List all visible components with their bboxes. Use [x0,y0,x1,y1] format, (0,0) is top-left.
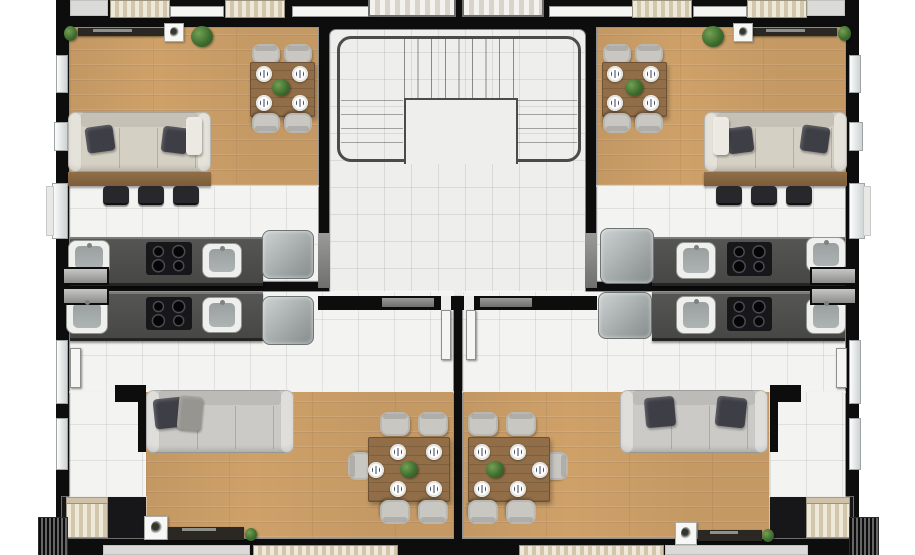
place-setting [292,95,308,111]
service-window [810,287,857,305]
place-setting [474,481,490,497]
wall-inset [480,298,532,307]
window-sill [46,186,54,236]
throw-pillow [715,396,748,429]
bar-stool [173,186,199,205]
fridge [598,292,652,339]
door-leaf [70,348,81,388]
place-setting [390,481,406,497]
wall-decor [733,23,753,42]
tv-console [698,530,762,541]
corner-closet-unit [38,517,68,555]
place-setting [607,66,623,82]
partial-room-floor [103,545,250,555]
closet-wardrobe-left [66,503,108,538]
fridge [262,230,314,279]
place-setting [426,481,442,497]
sofa-arm [68,112,82,172]
throw-pillow [644,396,677,429]
service-window [62,267,109,285]
dining-chair [252,113,280,133]
sofa-back [717,112,834,127]
window [849,340,861,404]
bar-stool [716,186,742,205]
dining-chair [380,500,410,524]
throw-pillow [84,124,115,154]
dining-chair [635,113,663,133]
corner-closet-unit [849,517,879,555]
closet-panel-center-right [462,0,544,17]
window [849,55,861,93]
dining-chair [284,113,312,133]
cooktop [146,242,192,275]
place-setting [474,444,490,460]
kitchen-sink [676,242,716,279]
fridge [600,228,654,284]
table-centerpiece-plant [625,79,643,96]
place-setting [643,95,659,111]
place-setting [426,444,442,460]
window [56,340,68,404]
dining-chair [252,44,280,64]
dining-chair [418,500,448,524]
console-table [68,172,211,186]
core-bottom-wall [318,296,597,310]
door-top-4 [693,6,747,17]
wall-decor [164,23,184,42]
place-setting [643,66,659,82]
kitchen-sink [202,243,242,278]
kitchen-sink [202,297,242,333]
place-setting [510,444,526,460]
closet-panel-center-left [368,0,456,17]
window [56,418,68,470]
sofa-arm [754,390,768,453]
window-sill [863,186,871,236]
sofa-arm [280,390,294,453]
place-setting [256,95,272,111]
kitchen-sink [676,296,716,334]
floorplan-canvas [0,0,915,555]
window [849,418,861,470]
sofa [620,390,768,453]
sofa-arm [620,390,634,453]
window [54,122,68,151]
sofa [704,112,847,172]
bar-stool [103,186,129,205]
unit-bottom-left-hallway-floor [70,392,146,497]
side-table-decor [144,516,168,540]
throw-pillow [726,126,755,155]
dining-chair [635,44,663,64]
unit-bottom-right-hallway-floor [770,392,845,497]
sofa-back [81,112,198,127]
table-centerpiece-plant [400,461,418,478]
dining-chair [468,412,498,436]
place-setting [368,462,384,478]
dining-chair [284,44,312,64]
potted-plant [245,528,257,541]
place-setting [532,462,548,478]
place-setting [390,444,406,460]
sofa [68,112,211,172]
bar-stool [751,186,777,205]
tv-console [78,28,164,36]
console-table [704,172,847,186]
dining-chair [418,412,448,436]
dining-chair [506,412,536,436]
stair-treads [404,39,514,98]
throw-pillow [713,117,729,155]
bar-stool [786,186,812,205]
potted-plant [702,26,724,47]
side-table-decor [675,522,697,545]
wardrobe-bottom-right [519,545,664,555]
place-setting [292,66,308,82]
table-centerpiece-plant [486,461,504,478]
partial-room-floor [665,545,808,555]
entry-opening-top-left-unit [318,233,330,288]
door-gap [441,296,451,310]
dining-chair [603,113,631,133]
place-setting [256,66,272,82]
entry-door-bottom-right-unit [466,310,476,360]
wall-inset [382,298,434,307]
closet-wardrobe-right [806,503,850,538]
wardrobe-top-left-2 [225,0,285,18]
stair-landing [404,98,518,164]
potted-plant [64,26,77,41]
door-top-3 [549,6,635,17]
window [52,183,68,239]
dining-chair [506,500,536,524]
door-top-1 [170,6,224,17]
wall-partition [138,396,146,452]
service-window [810,267,857,285]
window [56,55,68,93]
wardrobe-top-right [747,0,807,18]
cooktop [146,297,192,330]
dining-chair [468,500,498,524]
wardrobe-top-right-2 [632,0,692,18]
wardrobe-bottom-left [253,545,398,555]
partial-room-floor [70,0,108,16]
table-centerpiece-plant [272,79,290,96]
throw-pillow [799,124,830,154]
cooktop [727,297,772,331]
potted-plant [191,26,213,47]
door-leaf [836,348,847,388]
wall-partition [770,396,778,452]
dining-chair [380,412,410,436]
sofa [146,390,294,453]
throw-pillow [177,395,204,431]
potted-plant [838,26,851,41]
stair-steps-left [341,100,403,156]
tv-console [751,28,837,36]
entry-door-bottom-left-unit [441,310,451,360]
sofa-arm [833,112,847,172]
throw-pillow [186,117,202,155]
entry-opening-top-right-unit [585,233,597,288]
dining-chair [603,44,631,64]
tv-console [168,527,244,540]
cooktop [727,242,772,276]
fridge [262,296,314,345]
window [849,122,863,151]
partial-room-floor [807,0,845,16]
door-gap [464,296,474,310]
potted-plant [762,529,774,542]
place-setting [510,481,526,497]
bar-stool [138,186,164,205]
place-setting [607,95,623,111]
door-top-2 [292,6,378,17]
stair-steps-right [515,100,577,156]
wardrobe-top-left [110,0,170,18]
